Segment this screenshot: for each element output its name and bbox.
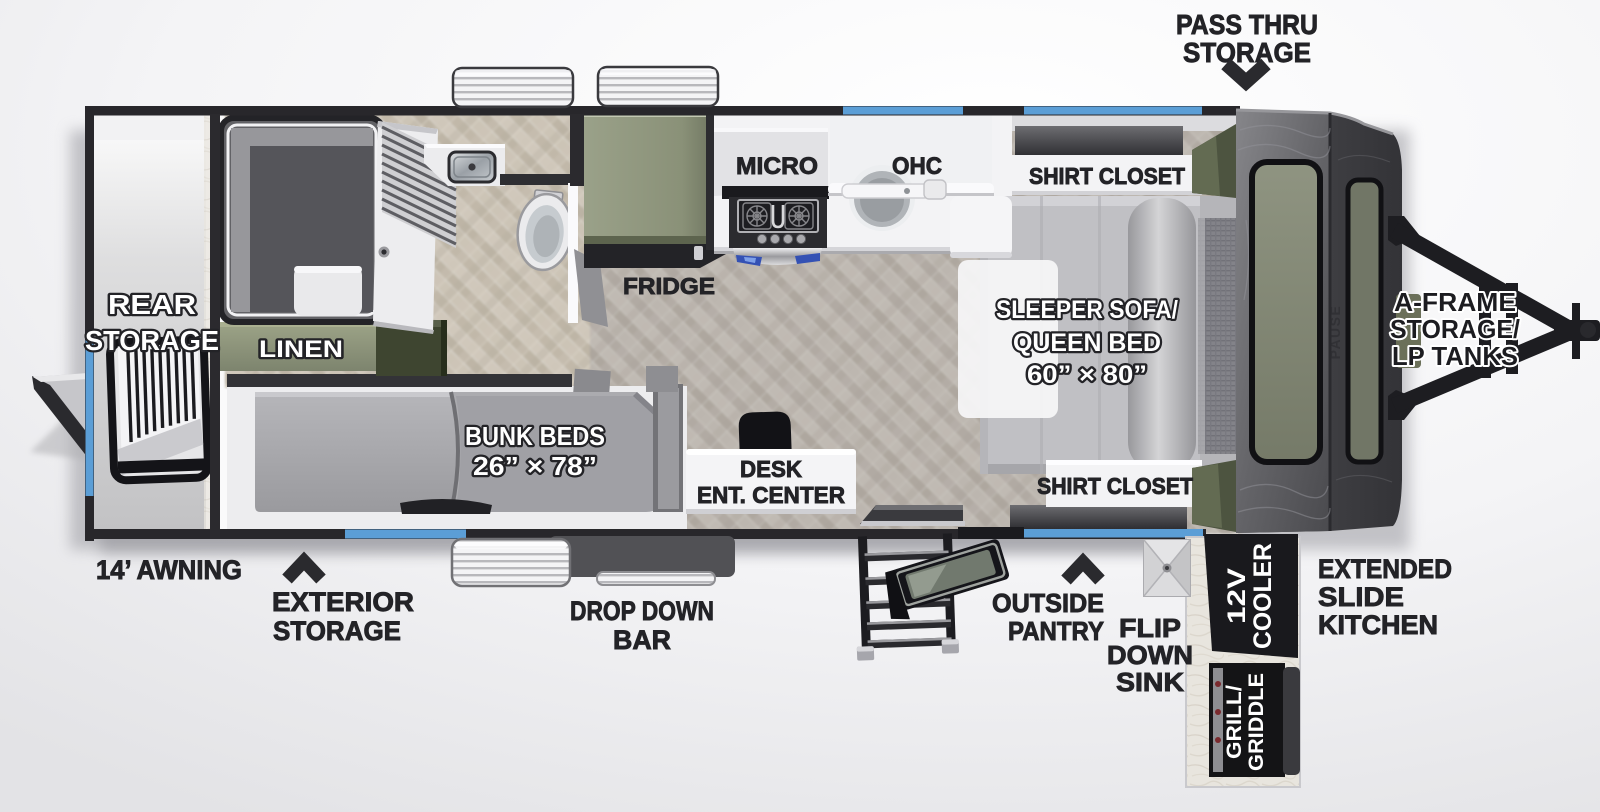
svg-text:60” × 80”: 60” × 80” xyxy=(1027,361,1147,389)
svg-text:FRIDGE: FRIDGE xyxy=(623,273,715,299)
svg-text:PASS THRU: PASS THRU xyxy=(1176,9,1318,40)
svg-text:FLIP: FLIP xyxy=(1119,613,1181,643)
svg-text:COOLER: COOLER xyxy=(1249,543,1277,649)
svg-text:LP TANKS: LP TANKS xyxy=(1392,341,1518,371)
svg-text:ENT. CENTER: ENT. CENTER xyxy=(697,482,845,508)
svg-text:QUEEN BED: QUEEN BED xyxy=(1013,329,1161,357)
svg-text:SLEEPER SOFA/: SLEEPER SOFA/ xyxy=(996,296,1178,324)
svg-text:STORAGE: STORAGE xyxy=(273,616,401,646)
svg-text:DROP DOWN: DROP DOWN xyxy=(570,596,714,626)
svg-text:PAUSE: PAUSE xyxy=(1327,305,1343,360)
svg-text:BAR: BAR xyxy=(613,625,671,655)
svg-text:MICRO: MICRO xyxy=(736,153,818,180)
svg-text:REAR: REAR xyxy=(108,289,196,320)
svg-text:KITCHEN: KITCHEN xyxy=(1318,610,1438,640)
svg-text:STORAGE: STORAGE xyxy=(85,325,219,356)
svg-text:LINEN: LINEN xyxy=(259,336,343,363)
svg-text:SLIDE: SLIDE xyxy=(1318,582,1404,612)
svg-text:BUNK BEDS: BUNK BEDS xyxy=(465,421,605,451)
svg-text:GRILL/: GRILL/ xyxy=(1223,685,1246,759)
svg-text:EXTERIOR: EXTERIOR xyxy=(272,587,414,617)
svg-text:26” × 78”: 26” × 78” xyxy=(473,451,597,481)
svg-text:14’ AWNING: 14’ AWNING xyxy=(96,555,242,585)
svg-text:EXTENDED: EXTENDED xyxy=(1318,554,1452,584)
svg-text:DESK: DESK xyxy=(740,456,802,482)
svg-text:DOWN: DOWN xyxy=(1107,640,1193,670)
svg-text:A-FRAME: A-FRAME xyxy=(1394,287,1516,317)
svg-text:OUTSIDE: OUTSIDE xyxy=(992,588,1104,618)
svg-text:PANTRY: PANTRY xyxy=(1008,616,1104,646)
svg-text:OHC: OHC xyxy=(892,153,942,180)
svg-text:12V: 12V xyxy=(1223,568,1251,624)
svg-text:STORAGE/: STORAGE/ xyxy=(1390,314,1520,344)
svg-text:GRIDDLE: GRIDDLE xyxy=(1245,673,1268,771)
svg-text:SINK: SINK xyxy=(1116,667,1184,697)
svg-text:SHIRT CLOSET: SHIRT CLOSET xyxy=(1029,163,1185,189)
svg-text:SHIRT CLOSET: SHIRT CLOSET xyxy=(1037,473,1193,499)
svg-text:STORAGE: STORAGE xyxy=(1183,37,1311,68)
